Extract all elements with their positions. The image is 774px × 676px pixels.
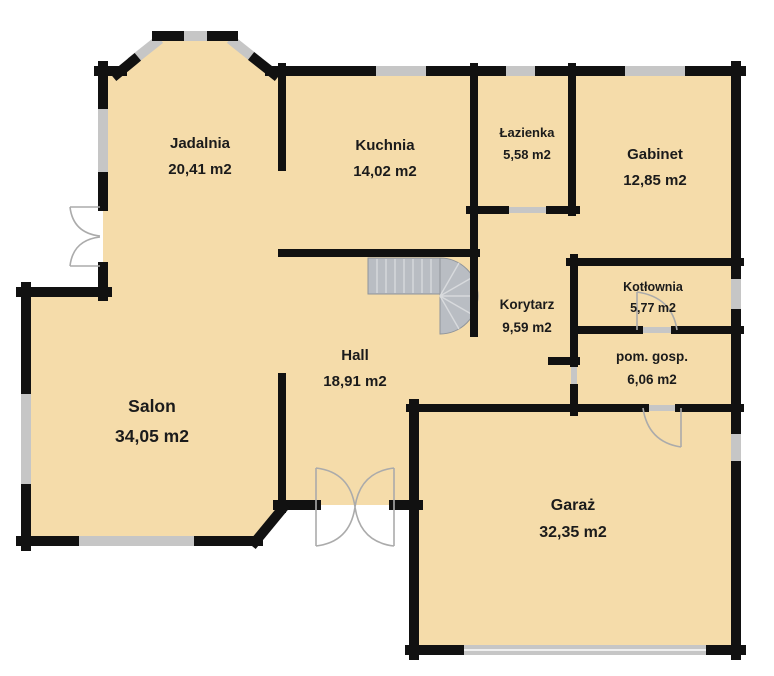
room-name: Korytarz [500, 294, 555, 317]
room-label-lazienka: Łazienka5,58 m2 [500, 122, 555, 166]
room-name: Kotłownia [623, 277, 683, 298]
room-label-kuchnia: Kuchnia14,02 m2 [353, 133, 416, 184]
room-area: 18,91 m2 [323, 369, 386, 395]
room-area: 34,05 m2 [115, 422, 189, 452]
room-name: pom. gosp. [616, 346, 688, 369]
room-label-hall: Hall18,91 m2 [323, 343, 386, 394]
room-label-kotlownia: Kotłownia5,77 m2 [623, 277, 683, 320]
room-name: Kuchnia [353, 133, 416, 159]
room-name: Hall [323, 343, 386, 369]
room-area: 20,41 m2 [168, 157, 231, 183]
room-area: 14,02 m2 [353, 159, 416, 185]
room-name: Łazienka [500, 122, 555, 144]
room-name: Jadalnia [168, 131, 231, 157]
room-label-gabinet: Gabinet12,85 m2 [623, 142, 686, 193]
room-area: 5,77 m2 [623, 298, 683, 319]
floorplan-canvas [0, 0, 774, 676]
room-area: 12,85 m2 [623, 168, 686, 194]
room-name: Salon [115, 392, 189, 422]
door-jadalnia-exterior-icon [70, 207, 100, 266]
room-area: 5,58 m2 [500, 144, 555, 166]
room-name: Gabinet [623, 142, 686, 168]
room-label-salon: Salon34,05 m2 [115, 392, 189, 452]
room-label-jadalnia: Jadalnia20,41 m2 [168, 131, 231, 182]
floor-plan: Jadalnia20,41 m2Kuchnia14,02 m2Łazienka5… [0, 0, 774, 676]
room-label-korytarz: Korytarz9,59 m2 [500, 294, 555, 340]
room-area: 6,06 m2 [616, 369, 688, 392]
room-name: Garaż [539, 492, 607, 519]
room-label-garaz: Garaż32,35 m2 [539, 492, 607, 546]
room-label-pom-gosp: pom. gosp.6,06 m2 [616, 346, 688, 392]
room-area: 32,35 m2 [539, 519, 607, 546]
room-area: 9,59 m2 [500, 317, 555, 340]
